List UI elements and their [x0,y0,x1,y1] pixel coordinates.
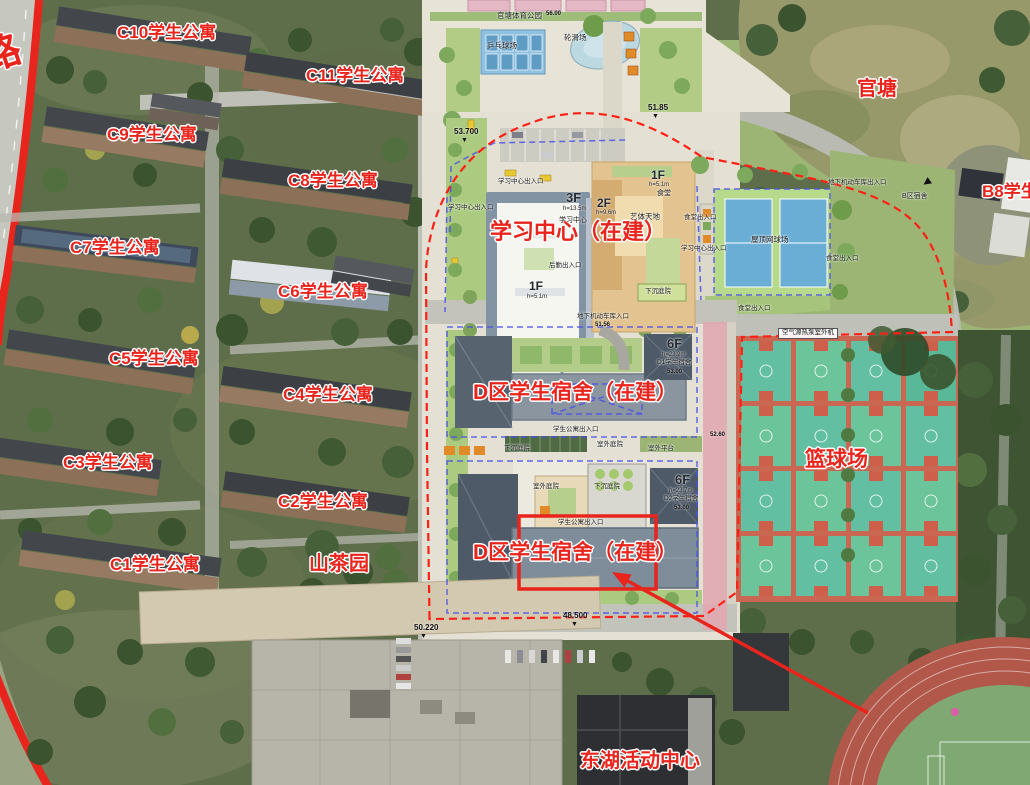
label-camellia-garden: 山茶园 [309,554,369,574]
label-sports-park: 官塘体育公园 [497,12,542,20]
label-c10: C10学生公寓 [117,24,216,41]
elev-50220: 50.220 [414,624,438,632]
label-canteen-exit-3: 食堂出入口 [738,306,771,313]
label-basketball: 篮球场 [805,449,868,470]
label-c5: C5学生公寓 [109,350,199,367]
label-lc-entrance-left: 学习中心出入口 [448,205,494,212]
label-c7: C7学生公寓 [70,239,160,256]
label-outdoor-court-1: 室外庭院 [597,442,623,449]
label-6f-d2: 6F [675,473,690,486]
label-c2: C2学生公寓 [278,493,368,510]
elev-48500: 48.500 [563,612,587,620]
label-1f-canteen-height: h=5.1m [649,182,669,188]
label-apt-exit-2: 学生公寓出入口 [558,520,604,527]
label-6f-d1: 6F [667,337,682,350]
label-2f: 2F [597,197,611,209]
label-1f-low: 1F [529,280,543,292]
label-logistics-exit: 后勤出入口 [549,263,582,270]
label-outdoor-terrace: 室外平台 [648,446,674,453]
label-lc-building: 学习中心 [559,217,587,224]
road-name: 路 [0,30,26,78]
elev-5185-marker: ▼ [652,113,659,120]
campus-aerial-map: 路C10学生公寓C11学生公寓C9学生公寓C8学生公寓C7学生公寓C6学生公寓C… [0,0,1030,785]
label-apt-exit-1: 学生公寓出入口 [553,427,599,434]
label-c4: C4学生公寓 [283,386,373,403]
label-c6: C6学生公寓 [278,283,368,300]
elev-5156: 51.56 [595,322,610,328]
b-dorm-arrow: ◀ [921,177,933,190]
label-lc-exit-right: 学习中心出入口 [681,246,727,253]
elev-50220-marker: ▼ [420,633,427,640]
label-learning-center: 学习中心（在建） [490,221,666,243]
label-garage-entrance-mid: 地下机动车库入口 [577,314,629,321]
label-c8: C8学生公寓 [288,172,378,189]
label-d2-height: h=23.7m [669,488,693,494]
label-d1-height: h=23.9m [662,352,686,358]
label-sunken-2: 下沉庭院 [594,484,620,491]
label-c9: C9学生公寓 [107,126,197,143]
label-d1-name: D1学生宿舍 [657,360,691,367]
label-d2-name: D2学生宿舍 [664,496,698,503]
label-lc-entrance-top: 学习中心出入口 [498,179,544,186]
label-1f-canteen: 1F [651,169,665,181]
elev-5185: 51.85 [648,104,668,112]
label-c1: C1学生公寓 [110,556,200,573]
label-outdoor-court-2: 室外庭院 [533,484,559,491]
elev-53700: 53.700 [454,128,478,136]
label-heat-pump: 空气源热泵室外机 [778,328,838,339]
label-canteen: 食堂 [657,190,671,197]
elev-park: 56.00 [546,11,561,17]
label-pingpong: 乒乓球场 [487,42,517,50]
label-skating: 轮滑场 [564,34,587,42]
map-labels: 路C10学生公寓C11学生公寓C9学生公寓C8学生公寓C7学生公寓C6学生公寓C… [0,0,1030,785]
label-c11: C11学生公寓 [306,67,404,84]
label-dorm-d-2: D区学生宿舍（在建） [473,542,677,563]
label-3f: 3F [566,191,581,204]
label-donghu-center: 东湖活动中心 [580,751,700,771]
label-guantang: 官塘 [857,79,897,99]
label-b8: B8学生公寓 [982,183,1030,200]
elev-53700-marker: ▼ [461,137,468,144]
label-arts-area: 艺体天地 [630,213,660,221]
label-garage-exit-ne: 地下机动车库出入口 [828,180,887,187]
label-canteen-exit-2: 食堂出入口 [826,256,859,263]
label-c3: C3学生公寓 [63,454,153,471]
label-1f-low-height: h=5.1m [527,294,547,300]
label-2f-height: h=9.6m [596,210,616,216]
label-3f-height: h=13.5m [563,206,587,212]
label-canteen-exit-1: 食堂出入口 [684,215,717,222]
label-dorm-d-1: D区学生宿舍（在建） [473,382,677,403]
elev-d2: 53.00 [674,505,689,511]
elev-5260: 52.60 [710,432,725,438]
label-b-dorm: B区宿舍 [902,193,928,200]
elev-48500-marker: ▼ [571,621,578,628]
elev-d1: 53.00 [667,369,682,375]
label-sunken-1: 下沉庭院 [504,446,530,453]
label-sunken-courtyard-e: 下沉庭院 [645,289,671,296]
label-tennis: 屋顶网球场 [751,236,789,244]
